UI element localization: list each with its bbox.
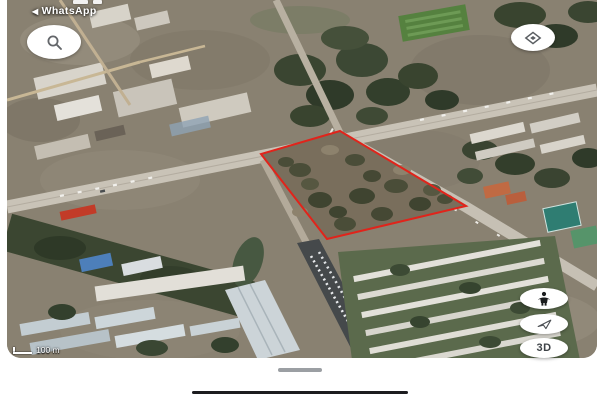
satellite-imagery <box>7 0 597 358</box>
back-arrow-icon: ◀ <box>32 7 39 16</box>
status-clipped-glyph-icon <box>93 0 102 4</box>
drag-handle[interactable] <box>278 368 322 372</box>
three-d-button[interactable]: 3D <box>520 338 568 358</box>
magnifier-icon <box>46 34 63 51</box>
map-style-button[interactable] <box>511 24 555 51</box>
search-button[interactable] <box>27 25 81 59</box>
street-view-button[interactable] <box>520 288 568 309</box>
satellite-map[interactable] <box>7 0 597 358</box>
map-scale: 100 m <box>13 345 60 355</box>
breadcrumb-label: WhatsApp <box>42 5 97 17</box>
pegman-icon <box>535 291 553 306</box>
status-clipped-glyph-icon <box>73 0 88 4</box>
screenshot-canvas: ◀ WhatsApp 3D 100 m <box>0 0 600 400</box>
scale-bar-icon <box>13 347 32 355</box>
layers-diamond-icon <box>523 30 543 46</box>
back-to-whatsapp-breadcrumb[interactable]: ◀ WhatsApp <box>32 5 97 17</box>
three-d-label: 3D <box>536 342 551 354</box>
scale-label: 100 m <box>36 345 60 355</box>
navigation-arrow-icon <box>535 317 554 331</box>
orientation-button[interactable] <box>520 314 568 334</box>
home-indicator-bar[interactable] <box>192 391 408 394</box>
